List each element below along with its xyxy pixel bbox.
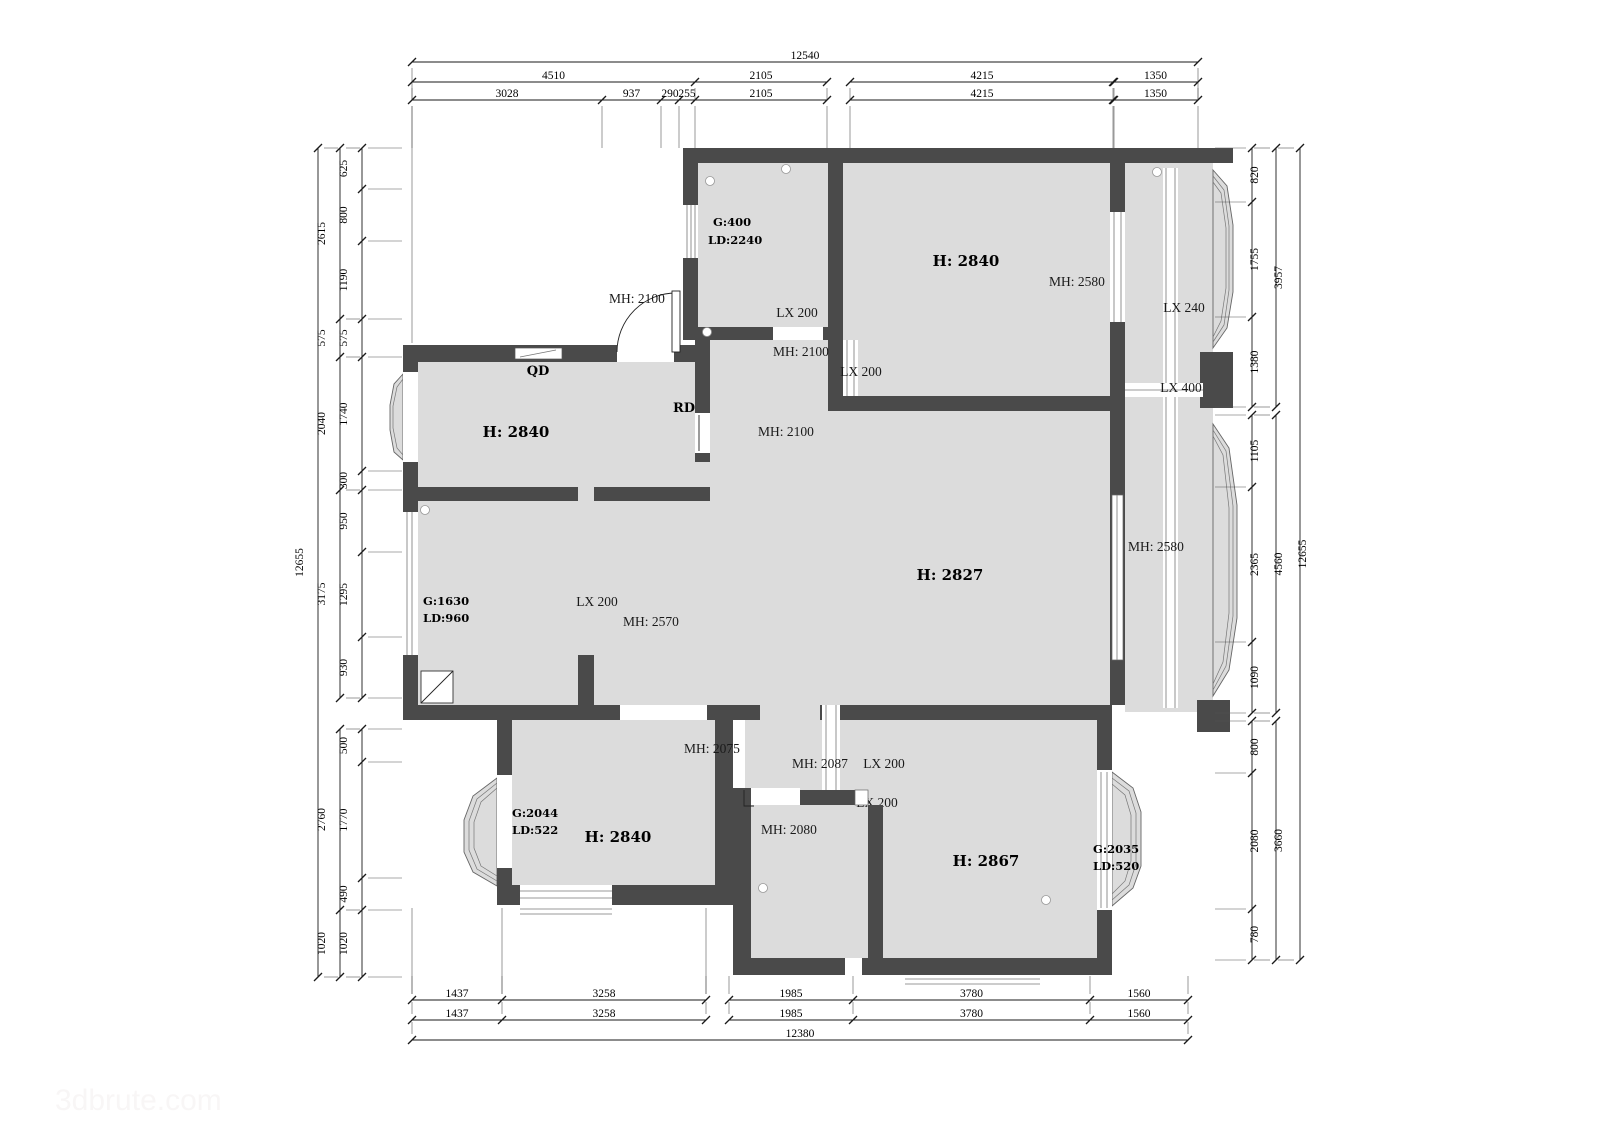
label-bl-height: H: 2840	[585, 828, 652, 846]
dim-label: 937	[623, 88, 641, 100]
window-bottomleft-bottom	[520, 885, 612, 905]
floor-bottom-band	[745, 705, 1112, 975]
dim-label: 3258	[593, 1008, 616, 1020]
dim-left-total: 12655	[294, 144, 338, 981]
hinge-mark	[421, 506, 430, 515]
hinge-mark	[1153, 168, 1162, 177]
label-bl-ld: LD:522	[512, 823, 558, 837]
dim-label: 1985	[780, 988, 803, 1000]
dim-label: 1350	[1144, 88, 1167, 100]
post-midroom	[855, 790, 868, 805]
label-storage-lx: LX 200	[776, 305, 818, 320]
dims-left: 6258001190575174030095012959305001770490…	[294, 144, 402, 981]
dim-label: 1985	[780, 1008, 803, 1020]
window-bedroom-tr	[1110, 212, 1125, 322]
floor-left-wing	[418, 362, 710, 705]
label-br-g: G:2035	[1093, 842, 1139, 856]
watermark: 3dbrute.com	[55, 1084, 222, 1117]
dim-label: 800	[1249, 738, 1261, 756]
floorplan-drawing: LX 200	[0, 0, 1600, 1131]
label-storage-g: G:400	[713, 215, 751, 229]
channel-bottom	[845, 958, 862, 975]
dim-label: 12655	[1297, 539, 1309, 568]
window-storage-left	[683, 205, 698, 258]
dim-label: 2105	[750, 70, 773, 82]
dim-label: 780	[1249, 926, 1261, 944]
label-hall-height: H: 2827	[917, 566, 984, 584]
dim-label: 3780	[960, 1008, 983, 1020]
window-bottomleft-bay	[497, 775, 512, 868]
entry-door-leaf	[672, 291, 680, 352]
label-bedroom-tr-height: H: 2840	[933, 252, 1000, 270]
window-bedroom-ml	[403, 512, 418, 655]
dim-bottom-total: 12380	[408, 1022, 1192, 1044]
label-hall-mh: MH: 2100	[758, 424, 814, 439]
wall-top	[683, 148, 1233, 163]
dim-label: 820	[1249, 166, 1261, 184]
floorplan-canvas: LX 200	[0, 0, 1600, 1131]
dim-top-row2: 4510210542151350	[408, 70, 1202, 100]
dim-label: 1560	[1128, 1008, 1151, 1020]
dim-label: 12540	[791, 50, 820, 62]
hinge-mark	[703, 328, 712, 337]
dim-label: 12655	[294, 548, 306, 577]
hinge-mark	[782, 165, 791, 174]
dim-label: 1090	[1249, 666, 1261, 689]
label-corridor-lx240: LX 240	[1163, 300, 1205, 315]
dim-label: 1105	[1249, 439, 1261, 462]
hinge-mark	[706, 177, 715, 186]
wall-bottom	[733, 958, 1112, 975]
label-living-height: H: 2840	[483, 423, 550, 441]
dim-label: 4510	[542, 70, 565, 82]
label-pass-lx: LX 200	[863, 756, 905, 771]
wall-hall-south	[820, 705, 1112, 720]
floor-bedroom-bottomleft	[497, 705, 733, 905]
dim-label: 3258	[593, 988, 616, 1000]
window-hall-right	[1112, 495, 1123, 660]
wall-bottomleft-right	[715, 705, 733, 905]
dim-label: 12380	[786, 1028, 815, 1040]
hinge-mark	[759, 884, 768, 893]
dim-label: 1380	[1249, 350, 1261, 373]
wall-column-right-bottom	[1197, 700, 1230, 732]
dim-label: 2105	[750, 88, 773, 100]
label-storage-door-mh: MH: 2100	[773, 344, 829, 359]
dim-label: 1560	[1128, 988, 1151, 1000]
label-storage-ld: LD:2240	[708, 233, 762, 247]
dim-left-inner: 6258001190575174030095012959305001770490…	[338, 144, 402, 981]
wall-midroom-left	[733, 788, 751, 975]
label-bedroom-ml-ld: LD:960	[423, 611, 469, 625]
dim-label: 2080	[1249, 829, 1261, 852]
channel-lx200-south	[822, 705, 840, 790]
dim-label: 3780	[960, 988, 983, 1000]
door-opening-midroom	[751, 788, 800, 805]
label-bedroom-ml-lx: LX 200	[576, 594, 618, 609]
label-qd: QD	[527, 364, 550, 379]
dim-label: 3028	[496, 88, 519, 100]
label-bl-door-mh: MH: 2075	[684, 741, 740, 756]
label-br-height: H: 2867	[953, 852, 1020, 870]
window-bottomright-bay	[1097, 770, 1112, 910]
bay-window-right-middle	[1213, 424, 1237, 696]
wall-midroom-top	[800, 790, 855, 805]
wall-living-top	[403, 345, 617, 362]
label-br-ld: LD:520	[1093, 859, 1139, 873]
label-pass-mh: MH: 2087	[792, 756, 848, 771]
bay-window-bottomright	[1112, 772, 1141, 906]
label-entry-lx: LX 200	[840, 364, 882, 379]
dim-label: 4215	[971, 88, 994, 100]
label-rd: RD	[673, 401, 695, 416]
dim-label: 290	[661, 88, 679, 100]
label-entry-door-mh: MH: 2100	[609, 291, 665, 306]
dim-label: 3957	[1273, 266, 1285, 289]
label-midroom-mh: MH: 2080	[761, 822, 817, 837]
label-bl-g: G:2044	[512, 806, 558, 820]
dim-label: 255	[678, 88, 696, 100]
dim-label: 2365	[1249, 553, 1261, 576]
dim-label: 1350	[1144, 70, 1167, 82]
dim-top-row3: 3028937290255210542151350	[408, 88, 1202, 148]
label-bedroom-ml-mh: MH: 2570	[623, 614, 679, 629]
wall-column-right-top	[1200, 352, 1233, 408]
label-bedroom-tr-mh: MH: 2580	[1049, 274, 1105, 289]
wall-bedroom-tr-bottom	[843, 396, 1110, 411]
dim-label: 1437	[446, 1008, 469, 1020]
dim-label: 1437	[446, 988, 469, 1000]
wall-partition-stub	[578, 655, 594, 705]
dim-bottom-row2: 14373258198537801560	[408, 1002, 1192, 1024]
hinge-mark	[1042, 896, 1051, 905]
dim-label: 4215	[971, 70, 994, 82]
dim-label: 3660	[1273, 829, 1285, 852]
dim-label: 1755	[1249, 248, 1261, 271]
dim-bottom-row1: 14373258198537801560	[408, 976, 1192, 1004]
door-opening-rd	[695, 413, 710, 453]
label-hall-right-mh: MH: 2580	[1128, 539, 1184, 554]
wall-living-bedroom-sep-left	[403, 487, 578, 501]
channel-lx240	[1163, 168, 1178, 708]
window-living-bay	[403, 372, 418, 462]
dim-label: 4560	[1273, 552, 1285, 575]
door-opening-storage	[773, 327, 823, 340]
door-opening-bottomleft	[620, 705, 707, 720]
label-corridor-lx400: LX 400	[1160, 380, 1202, 395]
label-bedroom-ml-g: G:1630	[423, 594, 469, 608]
dim-top-total: 12540	[408, 50, 1202, 100]
bay-window-right-top	[1213, 170, 1233, 348]
wall-living-bedroom-sep-right	[594, 487, 710, 501]
wall-midroom-right	[868, 805, 883, 975]
